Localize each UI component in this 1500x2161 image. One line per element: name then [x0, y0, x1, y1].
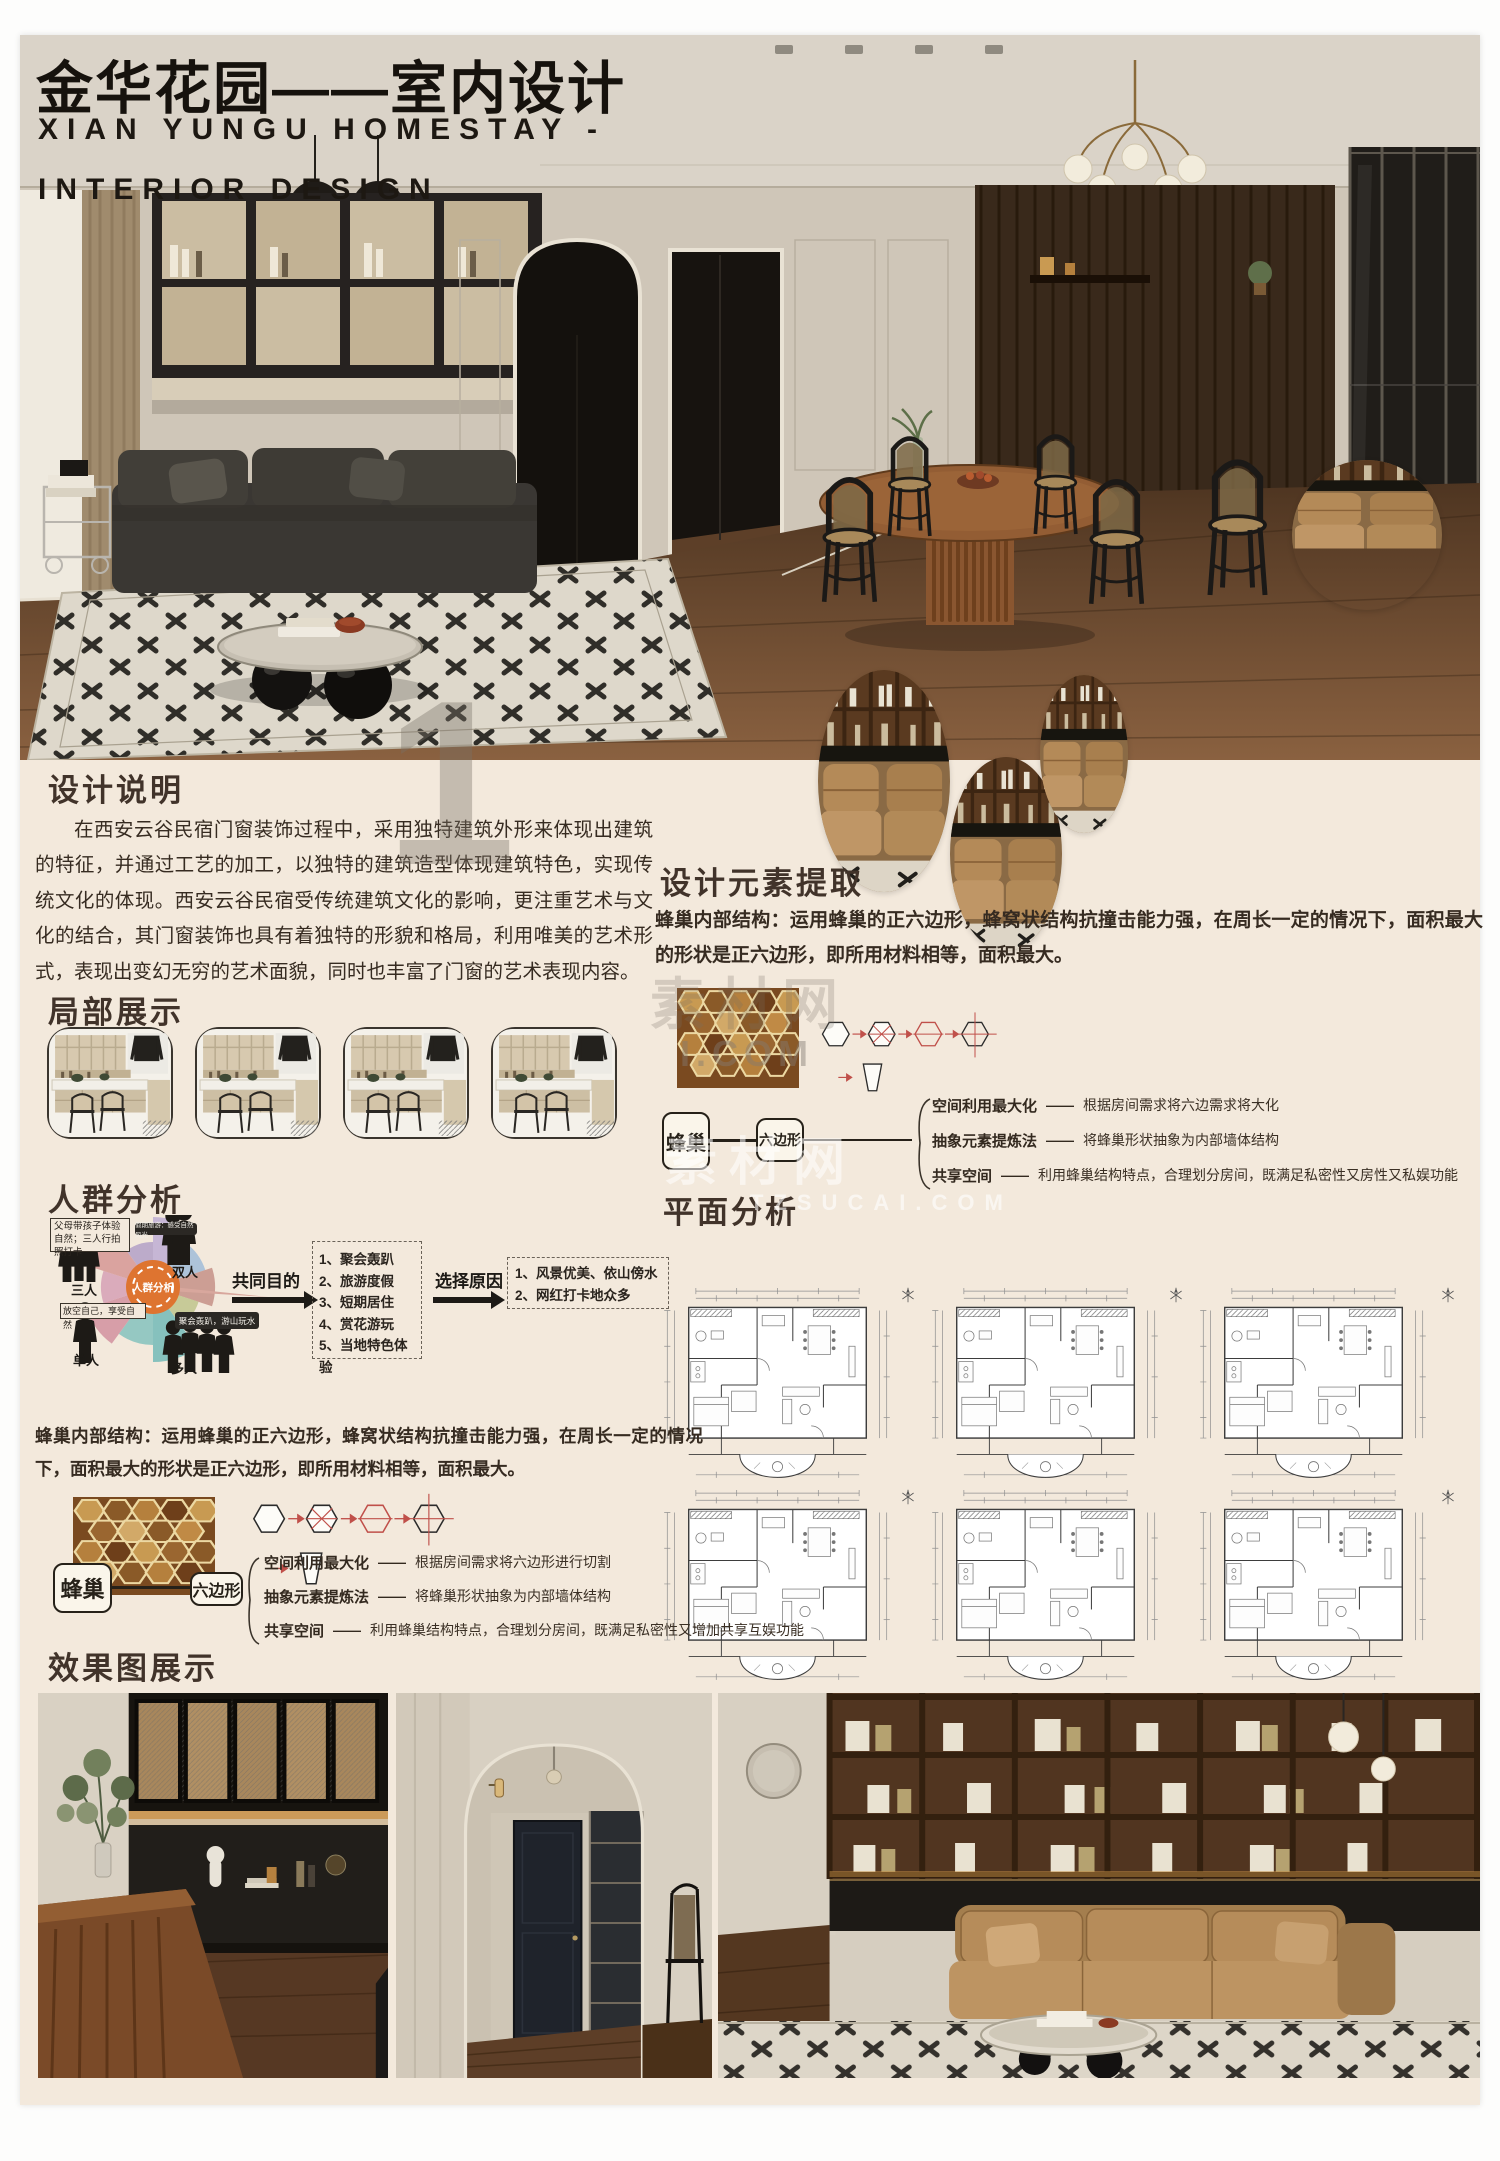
flow-connector-right-2: [804, 1139, 912, 1141]
flow-branch-3-right: 共享空间 —— 利用蜂巢结构特点，合理划分房间，既满足私密性又房性又私娱功能: [932, 1165, 1458, 1185]
flow-root-left: 蜂巢: [53, 1563, 112, 1613]
crowd-bubble-trip: 假期旅游：感受自然风光: [135, 1223, 197, 1235]
branch-label: 共享空间: [264, 1620, 324, 1641]
branch-desc: 将蜂巢形状抽象为内部墙体结构: [1083, 1130, 1279, 1150]
media-shelving-wall: [152, 193, 542, 414]
floor-plan-2: [928, 1285, 1163, 1484]
branch-desc: 利用蜂巢结构特点，合理划分房间，既满足私密性又增加共享互娱功能: [370, 1620, 804, 1640]
plan-heading: 平面分析: [663, 1187, 799, 1232]
compass-star-icon: [1440, 1489, 1456, 1505]
hexagon-diagram-right: [815, 1007, 1015, 1107]
render-photo-bookshelf: [718, 1693, 1480, 2078]
arrow-common-purpose: [232, 1297, 304, 1303]
kitchen-thumb-2: [195, 1027, 321, 1139]
flow-mid-right: 六边形: [756, 1118, 804, 1162]
wheel-center-label: 人群分析: [132, 1281, 174, 1294]
purpose-item-2: 2、旅游度假: [319, 1271, 415, 1293]
wheel-label-single: 单人: [73, 1353, 100, 1368]
crowd-bubble-family: 父母带孩子体验自然；三人行拍照打卡: [50, 1218, 130, 1252]
compass-star-icon: [1440, 1287, 1456, 1303]
leather-sofa: [949, 1905, 1395, 2019]
element-body: 蜂巢内部结构：运用蜂巢的正六边形，蜂窝状结构抗撞击能力强，在周长一定的情况下，面…: [655, 903, 1483, 973]
flow-branch-1-left: 空间利用最大化 —— 根据房间需求将六边形进行切割: [264, 1552, 611, 1572]
flow-root-right: 蜂巢: [662, 1112, 710, 1170]
kitchen-thumb-1: [47, 1027, 173, 1139]
design-note-body: 在西安云谷民宿门窗装饰过程中，采用独特建筑外形来体现出建筑的特征，并通过工艺的加…: [35, 813, 653, 990]
purpose-item-4: 4、赏花游玩: [319, 1314, 415, 1336]
compass-star-icon: [900, 1287, 916, 1303]
wheel-label-triple: 三人: [71, 1283, 98, 1298]
branch-dash: ——: [1046, 1132, 1074, 1148]
flow-brace-right: [912, 1095, 932, 1195]
screenshot-page: 金华花园——室内设计 XIAN YUNGU HOMESTAY - INTERIO…: [0, 0, 1500, 2161]
flow-branch-2-right: 抽象元素提炼法 —— 将蜂巢形状抽象为内部墙体结构: [932, 1130, 1279, 1150]
flow-branch-2-left: 抽象元素提炼法 —— 将蜂巢形状抽象为内部墙体结构: [264, 1586, 611, 1606]
flow-mid-left: 六边形: [190, 1572, 243, 1606]
render-photo-hallway: [396, 1693, 712, 2078]
branch-dash: ——: [378, 1588, 406, 1604]
branch-dash: ——: [1001, 1167, 1029, 1183]
hive-body: 蜂巢内部结构：运用蜂巢的正六边形，蜂窝状结构抗撞击能力强，在周长一定的情况下，面…: [35, 1420, 703, 1487]
flow-connector-left: [112, 1586, 190, 1589]
reason-list-box: 1、风景优美、依山傍水 2、网红打卡地众多: [507, 1257, 669, 1309]
branch-label: 抽象元素提炼法: [932, 1130, 1037, 1151]
branch-desc: 根据房间需求将六边需求将大化: [1083, 1095, 1279, 1115]
wheel-label-multi: 多人: [171, 1361, 198, 1376]
branch-label: 抽象元素提炼法: [264, 1586, 369, 1607]
flow-connector-right: [710, 1139, 756, 1142]
poster-subtitle-en-2: INTERIOR DESIGN: [38, 173, 440, 207]
kitchen-thumb-4: [491, 1027, 617, 1139]
oval-photo-inset-3: [1040, 675, 1128, 833]
slat-wood-wall: [975, 185, 1335, 495]
reason-item-2: 2、网红打卡地众多: [515, 1285, 661, 1307]
branch-dash: ——: [378, 1554, 406, 1570]
render-heading: 效果图展示: [48, 1643, 218, 1688]
branch-desc: 根据房间需求将六边形进行切割: [415, 1552, 611, 1572]
arrow-choose-reason-head: [491, 1291, 505, 1309]
purpose-item-1: 1、聚会轰趴: [319, 1249, 415, 1271]
circle-photo-inset-4: [1292, 460, 1442, 610]
partial-heading: 局部展示: [48, 987, 184, 1032]
branch-label: 空间利用最大化: [932, 1095, 1037, 1116]
crowd-heading: 人群分析: [48, 1175, 184, 1220]
branch-label: 空间利用最大化: [264, 1552, 369, 1573]
crowd-diagram: 人群分析 双人 三人 单人 多人 父母带孩子体验自然；三人行拍照打卡 假期旅游：…: [35, 1215, 685, 1420]
branch-dash: ——: [1046, 1097, 1074, 1113]
flow-branch-1-right: 空间利用最大化 —— 根据房间需求将六边需求将大化: [932, 1095, 1279, 1115]
design-poster: 金华花园——室内设计 XIAN YUNGU HOMESTAY - INTERIO…: [20, 35, 1480, 2105]
compass-star-icon: [900, 1489, 916, 1505]
kitchen-thumb-3: [343, 1027, 469, 1139]
poster-subtitle-en-1: XIAN YUNGU HOMESTAY -: [38, 113, 606, 147]
compass-star-icon: [1168, 1287, 1184, 1303]
floor-plan-5: [928, 1487, 1163, 1686]
purpose-list-box: 1、聚会轰趴 2、旅游度假 3、短期居住 4、赏花游玩 5、当地特色体验: [312, 1241, 422, 1359]
floor-plan-3: [1196, 1285, 1431, 1484]
sofa: [112, 448, 537, 593]
element-heading: 设计元素提取: [660, 858, 864, 903]
branch-desc: 利用蜂巢结构特点，合理划分房间，既满足私密性又房性又私娱功能: [1038, 1165, 1458, 1185]
branch-desc: 将蜂巢形状抽象为内部墙体结构: [415, 1586, 611, 1606]
honeycomb-photo-right: [677, 988, 799, 1088]
floor-plan-6: [1196, 1487, 1431, 1686]
purpose-item-5: 5、当地特色体验: [319, 1335, 415, 1378]
crowd-bubble-party: 聚会轰趴，游山玩水: [175, 1312, 259, 1329]
purpose-item-3: 3、短期居住: [319, 1292, 415, 1314]
branch-label: 共享空间: [932, 1165, 992, 1186]
wheel-label-double: 双人: [172, 1265, 199, 1280]
branch-dash: ——: [333, 1622, 361, 1638]
reason-item-1: 1、风景优美、依山傍水: [515, 1263, 661, 1285]
design-note-heading: 设计说明: [48, 765, 184, 810]
choose-reason-label: 选择原因: [435, 1267, 503, 1292]
flow-branch-3-left: 共享空间 —— 利用蜂巢结构特点，合理划分房间，既满足私密性又增加共享互娱功能: [264, 1620, 804, 1640]
arrow-choose-reason: [433, 1297, 491, 1303]
render-photo-dining: [38, 1693, 388, 2078]
hallway-opening: [670, 250, 782, 575]
flow-brace-left: [243, 1554, 261, 1650]
common-purpose-label: 共同目的: [232, 1267, 300, 1292]
crowd-bubble-relax: 放空自己，享受自然: [60, 1303, 146, 1319]
